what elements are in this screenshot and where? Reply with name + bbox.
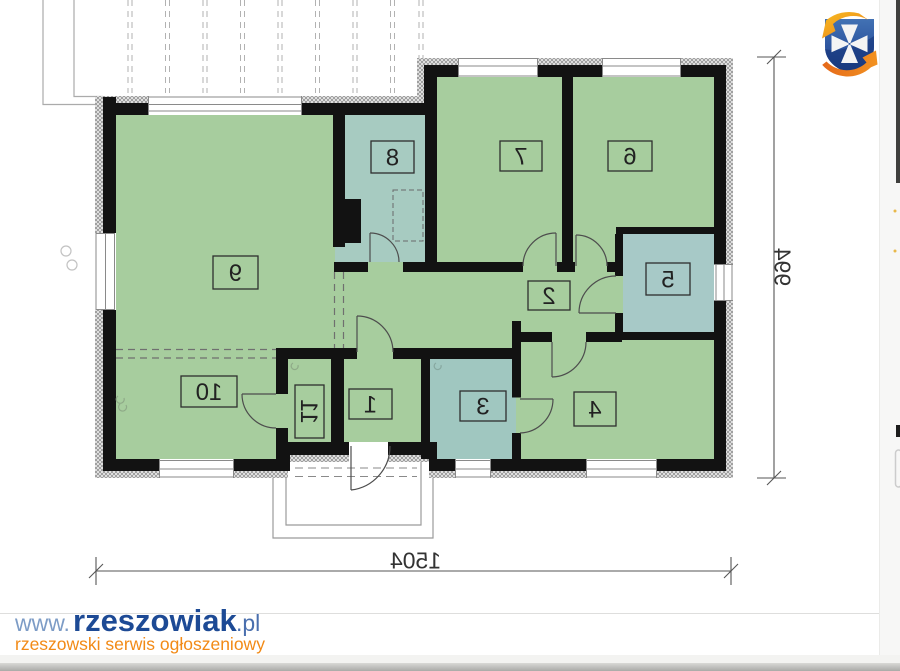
svg-text:rzeszowiak: rzeszowiak: [73, 603, 237, 638]
svg-text:7: 7: [514, 144, 527, 171]
svg-text:2: 2: [542, 283, 555, 310]
svg-text:6: 6: [623, 144, 636, 171]
svg-text:1: 1: [364, 392, 377, 419]
svg-text:www.: www.: [14, 610, 70, 636]
svg-text:5: 5: [661, 267, 674, 294]
svg-text:.pl: .pl: [236, 610, 260, 636]
svg-text:rzeszowski serwis ogłoszeniowy: rzeszowski serwis ogłoszeniowy: [15, 634, 265, 654]
svg-text:10: 10: [196, 379, 223, 406]
svg-text:9: 9: [229, 260, 242, 287]
svg-text:1504: 1504: [390, 548, 441, 574]
svg-text:3: 3: [476, 394, 489, 421]
svg-text:8: 8: [386, 145, 399, 172]
svg-text:4: 4: [588, 397, 601, 424]
svg-text:994: 994: [770, 248, 796, 287]
svg-text:11: 11: [295, 399, 322, 424]
